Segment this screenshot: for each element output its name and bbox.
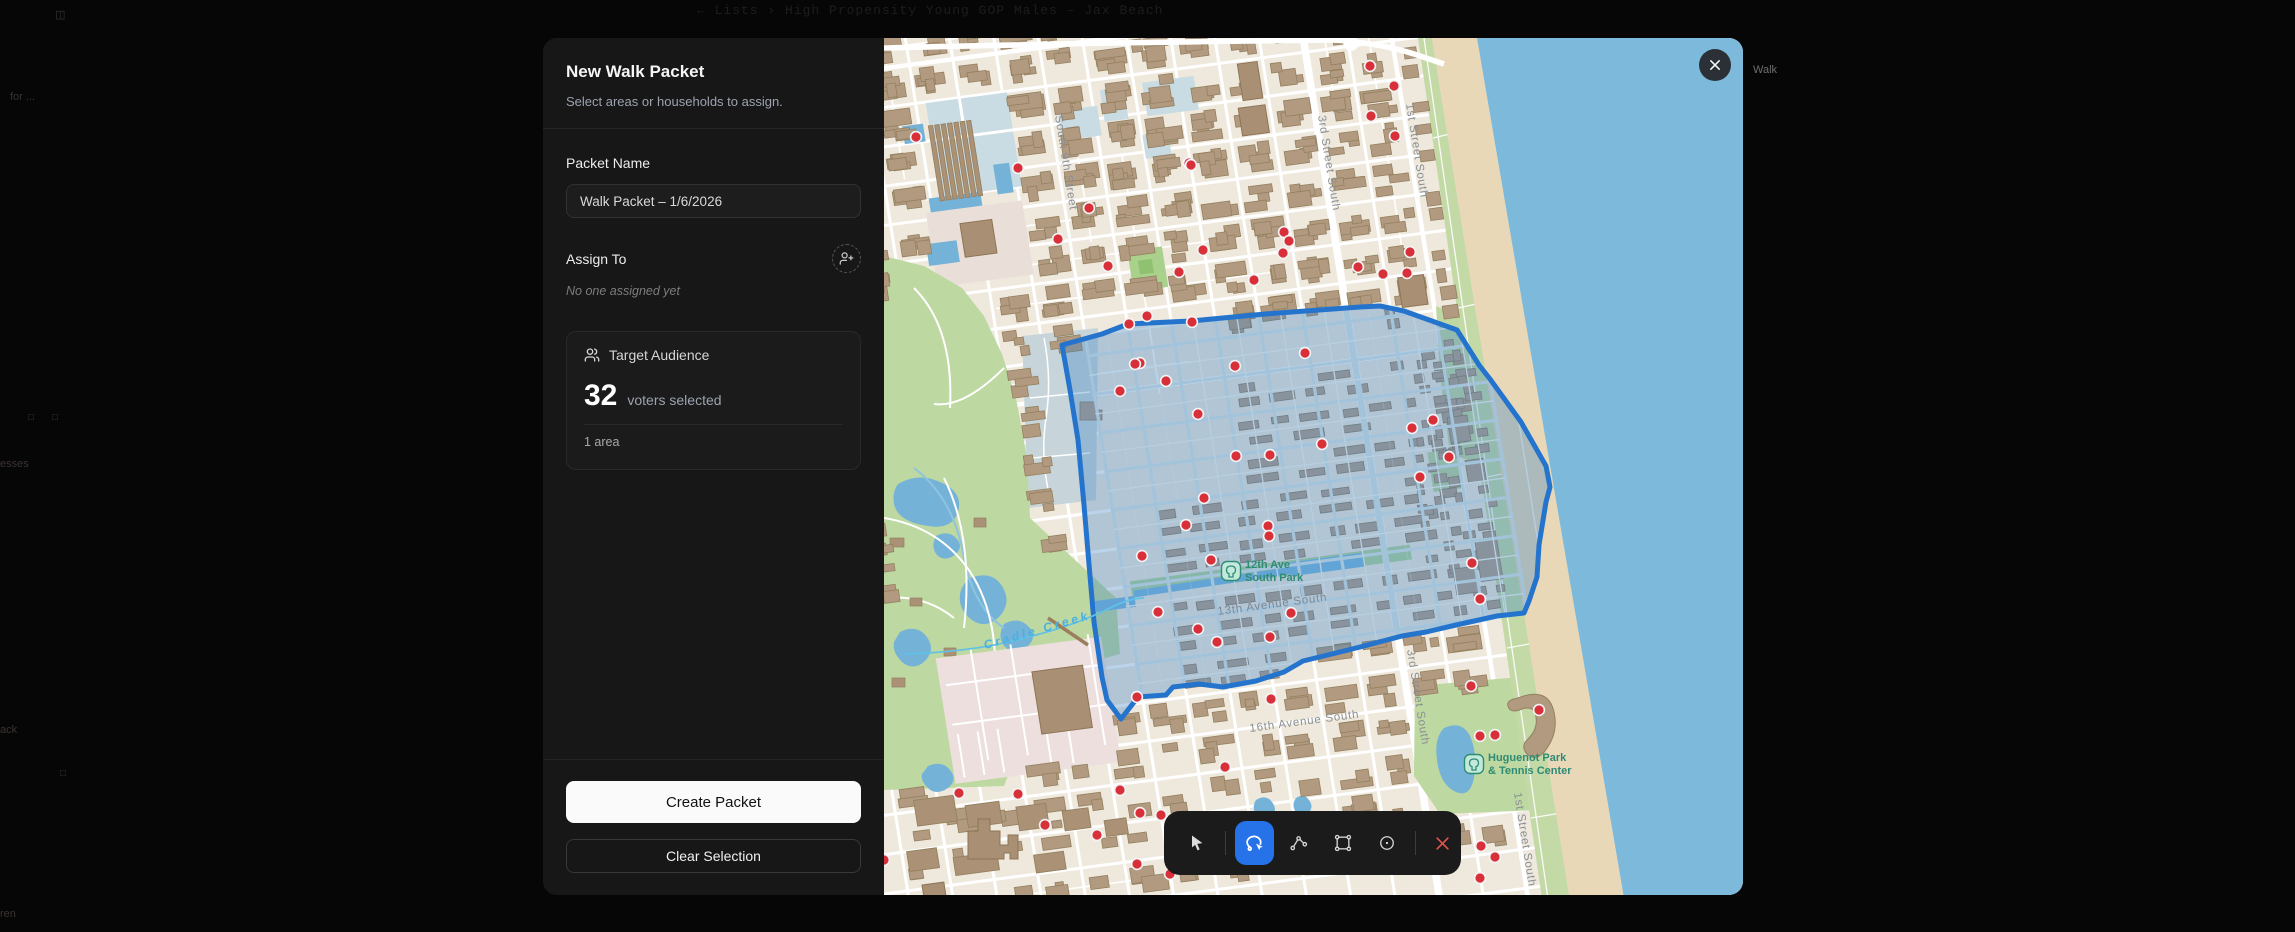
svg-text:South Park: South Park [1245, 572, 1304, 584]
svg-text:Huguenot Park: Huguenot Park [1488, 752, 1567, 764]
svg-text:12th Ave: 12th Ave [1245, 559, 1290, 571]
svg-text:& Tennis Center: & Tennis Center [1488, 765, 1572, 777]
